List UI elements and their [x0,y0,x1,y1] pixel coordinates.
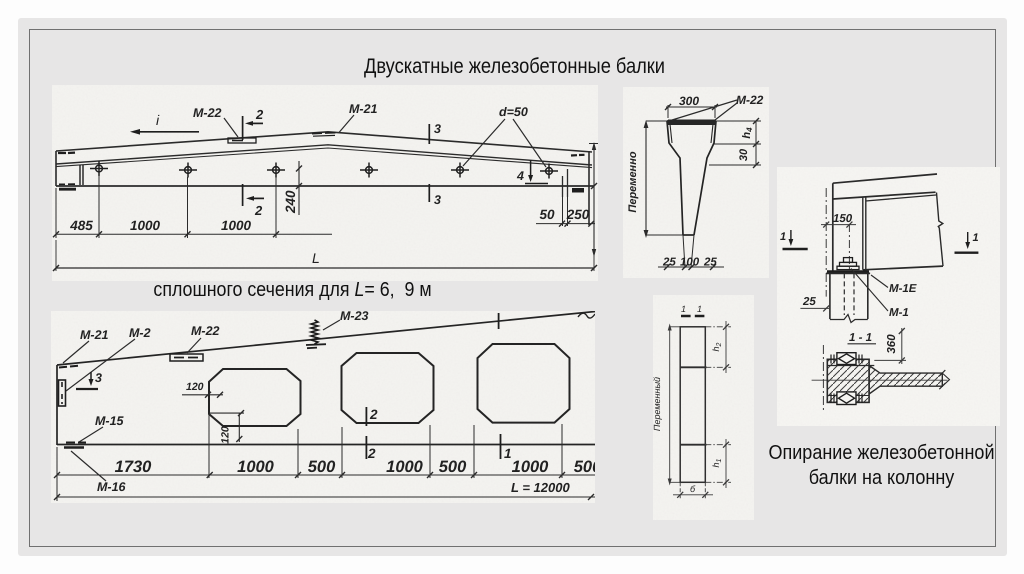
svg-text:М-21: М-21 [349,102,378,116]
svg-text:100: 100 [680,257,700,269]
svg-text:М-22: М-22 [736,93,764,107]
svg-text:2: 2 [369,407,378,422]
svg-text:М-15: М-15 [95,414,125,428]
svg-text:120: 120 [186,381,204,393]
svg-text:1 - 1: 1 - 1 [849,332,872,344]
svg-text:1: 1 [681,304,686,314]
svg-text:250: 250 [566,207,590,222]
svg-text:485: 485 [69,218,93,233]
svg-text:2: 2 [255,107,264,122]
svg-text:500: 500 [439,458,467,476]
svg-text:1730: 1730 [115,458,153,476]
svg-text:1000: 1000 [237,458,275,476]
svg-text:М-21: М-21 [80,328,109,342]
svg-text:25: 25 [703,257,717,269]
svg-text:500: 500 [574,458,595,476]
svg-text:М-2: М-2 [129,326,151,340]
svg-text:L = 12000: L = 12000 [511,480,570,495]
svg-text:500: 500 [308,458,336,476]
svg-text:3: 3 [434,122,441,136]
svg-text:150: 150 [833,213,853,225]
svg-text:1: 1 [780,231,786,243]
svg-text:1000: 1000 [512,458,550,476]
svg-text:1: 1 [973,232,979,244]
svg-text:360: 360 [886,334,898,354]
svg-text:М-16: М-16 [97,480,127,494]
svg-text:Переменно: Переменно [627,151,639,212]
svg-text:L: L [312,250,320,266]
svg-text:30: 30 [738,148,750,161]
svg-text:2: 2 [254,203,263,218]
svg-text:2: 2 [367,446,376,461]
svg-text:Переменный: Переменный [653,377,662,431]
svg-text:1: 1 [504,446,512,461]
svg-text:3: 3 [434,193,441,207]
svg-text:М-1Е: М-1Е [889,283,917,295]
svg-text:50: 50 [539,207,555,222]
svg-text:М-22: М-22 [191,324,220,338]
svg-text:М-23: М-23 [340,311,369,323]
svg-text:240: 240 [283,190,298,214]
svg-text:1000: 1000 [386,458,424,476]
svg-text:25: 25 [662,257,676,269]
svg-text:1000: 1000 [221,218,252,233]
svg-text:М-1: М-1 [889,307,909,319]
svg-text:3: 3 [95,371,102,385]
svg-text:300: 300 [679,94,699,108]
svg-text:М-22: М-22 [193,106,222,120]
svg-text:1000: 1000 [130,218,161,233]
svg-text:120: 120 [220,426,232,444]
svg-text:4: 4 [516,169,524,183]
svg-text:1: 1 [697,304,702,314]
svg-text:d=50: d=50 [499,105,528,119]
svg-text:25: 25 [802,296,816,308]
